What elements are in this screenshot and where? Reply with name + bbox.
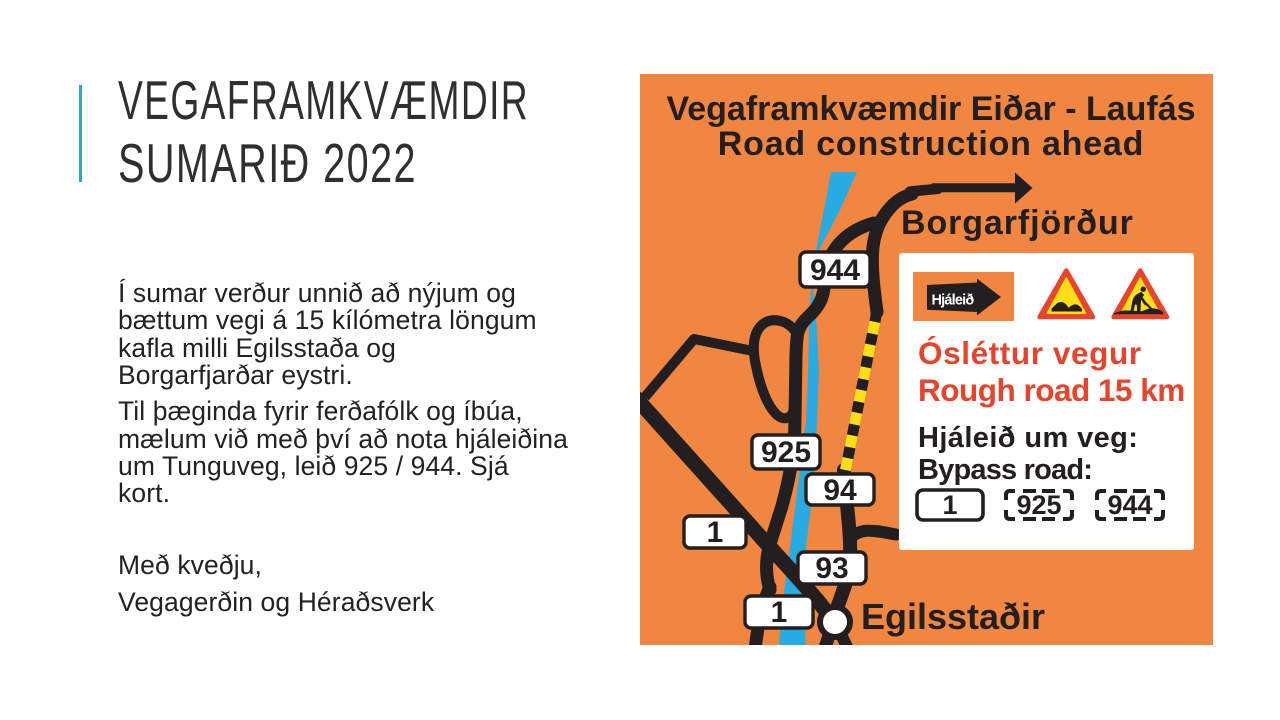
svg-text:944: 944 bbox=[1107, 490, 1152, 520]
svg-text:Road construction ahead: Road construction ahead bbox=[718, 125, 1144, 163]
svg-text:Bypass road:: Bypass road: bbox=[918, 454, 1092, 486]
svg-text:925: 925 bbox=[1016, 490, 1061, 520]
svg-text:1: 1 bbox=[771, 596, 788, 629]
svg-text:1: 1 bbox=[707, 516, 724, 549]
svg-text:Hjáleið um veg:: Hjáleið um veg: bbox=[918, 422, 1138, 454]
svg-text:93: 93 bbox=[815, 552, 848, 585]
svg-text:944: 944 bbox=[810, 254, 860, 287]
svg-text:925: 925 bbox=[761, 436, 811, 469]
svg-text:Egilsstaðir: Egilsstaðir bbox=[861, 596, 1045, 637]
svg-text:Borgarfjörður: Borgarfjörður bbox=[901, 204, 1134, 242]
svg-text:Rough road 15 km: Rough road 15 km bbox=[918, 372, 1185, 408]
svg-text:Vegaframkvæmdir Eiðar - Laufás: Vegaframkvæmdir Eiðar - Laufás bbox=[666, 90, 1195, 128]
svg-text:Hjáleið: Hjáleið bbox=[932, 293, 975, 309]
svg-text:Ósléttur vegur: Ósléttur vegur bbox=[918, 335, 1142, 371]
svg-text:1: 1 bbox=[942, 490, 957, 520]
svg-text:94: 94 bbox=[823, 474, 857, 507]
